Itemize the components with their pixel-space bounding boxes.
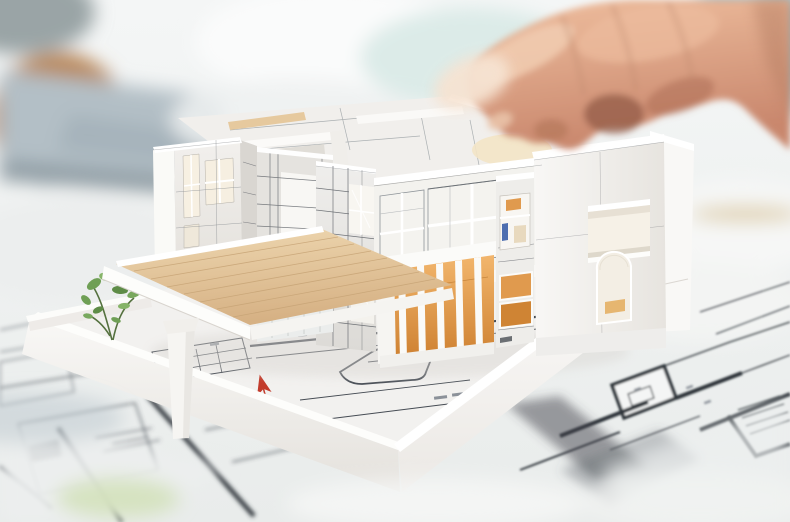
strip-orange-slat-a [500,272,532,300]
arched-window [597,252,631,324]
right-wing [532,134,666,356]
finger-gap-shadow [584,94,644,134]
strip-beige-tab [514,225,526,243]
right-recessed-strip [496,172,534,348]
photo-architectural-model-scene [0,0,790,522]
tower-window-3 [184,224,199,248]
strip-orange-tab [506,198,521,211]
arched-window-opening [597,252,631,324]
foreground-green-blob [56,478,180,518]
strip-blue-tab [502,223,508,241]
strip-orange-slat-b [500,300,532,328]
thumb-shadow [534,119,568,141]
